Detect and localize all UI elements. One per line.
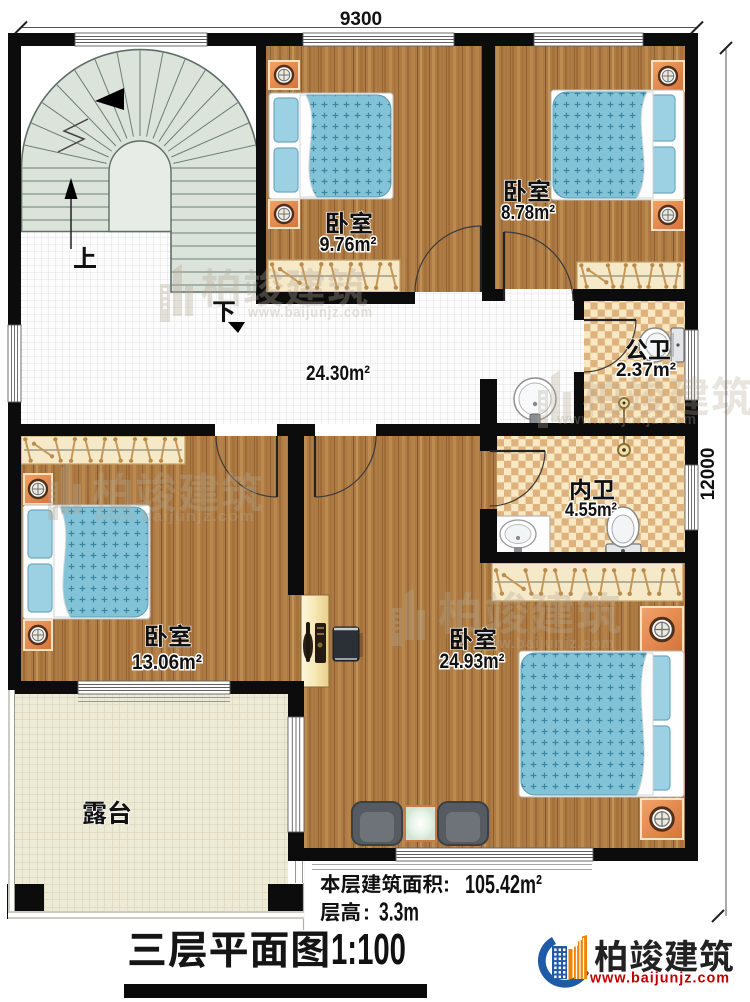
svg-text:www.baijunjz.com: www.baijunjz.com <box>247 304 373 321</box>
svg-text:2.37m²: 2.37m² <box>616 360 676 381</box>
svg-text:24.30m²: 24.30m² <box>306 362 370 385</box>
svg-text:4.55m²: 4.55m² <box>565 500 617 521</box>
svg-text:8.78m²: 8.78m² <box>501 201 555 224</box>
svg-text:www.baijunjz.com: www.baijunjz.com <box>589 971 730 987</box>
svg-text:www.baijunjz.com: www.baijunjz.com <box>556 411 697 428</box>
svg-text:9.76m²: 9.76m² <box>320 233 377 256</box>
svg-text:9300: 9300 <box>340 9 382 30</box>
svg-text:1:100: 1:100 <box>331 925 406 974</box>
svg-text:105.42m²: 105.42m² <box>465 869 542 899</box>
svg-text:12000: 12000 <box>698 448 719 501</box>
svg-text::: : <box>363 902 370 925</box>
svg-text:3.3m: 3.3m <box>379 897 419 927</box>
svg-text::: : <box>443 874 450 897</box>
svg-text:www.baijunjz.com: www.baijunjz.com <box>94 508 255 525</box>
svg-text:13.06m²: 13.06m² <box>132 651 202 674</box>
svg-text:24.93m²: 24.93m² <box>440 650 505 673</box>
